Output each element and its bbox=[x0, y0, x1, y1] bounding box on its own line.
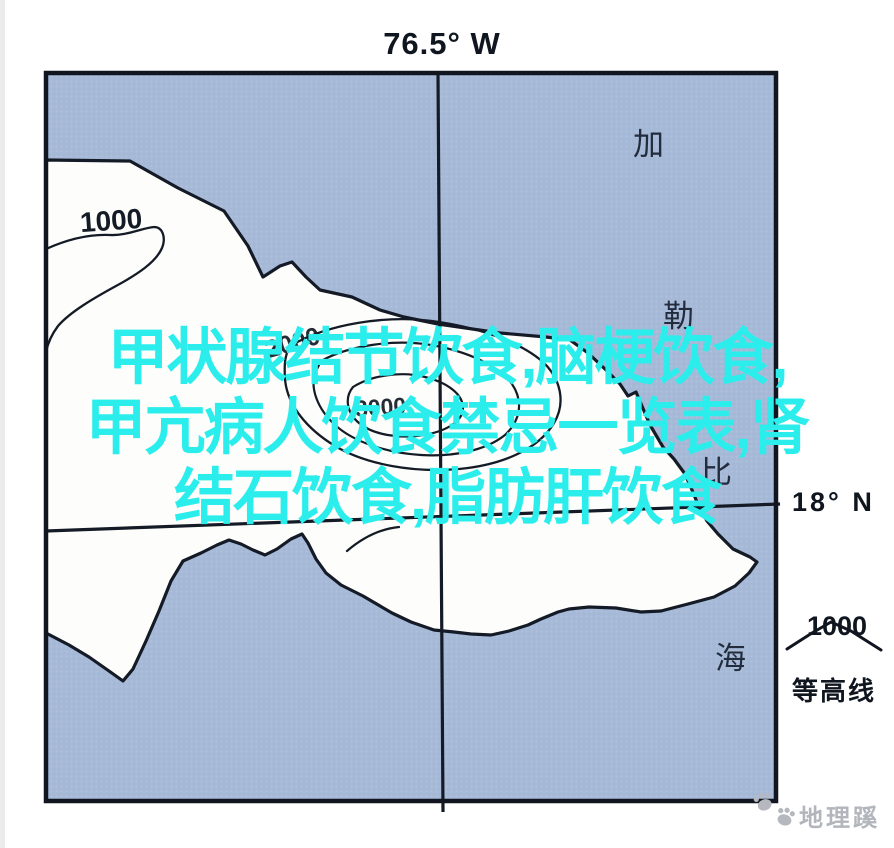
overlay-watermark-line-2: 甲亢病人饮食禁忌一览表,肾 bbox=[0, 392, 894, 462]
legend-contour-name: 等高线 bbox=[792, 671, 876, 708]
brand-watermark-text: 地理蹊 bbox=[799, 798, 880, 833]
legend-contour-value: 1000 bbox=[807, 611, 867, 642]
overlay-watermark-line-3: 结石饮食,脂肪肝饮食 bbox=[0, 462, 894, 532]
overlay-watermark-line-1: 甲状腺结节饮食,脑梗饮食, bbox=[0, 322, 894, 392]
sea-name-char-4: 海 bbox=[715, 633, 746, 678]
contour-label-1000: 1000 bbox=[79, 203, 143, 239]
overlay-watermark: 甲状腺结节饮食,脑梗饮食, 甲亢病人饮食禁忌一览表,肾 结石饮食,脂肪肝饮食 bbox=[0, 322, 894, 532]
longitude-label: 76.5° W bbox=[342, 26, 542, 62]
island-contour-map-figure: 76.5° W 18° N 1000 2000 3000 加 勒 比 海 100… bbox=[0, 0, 894, 848]
sea-name-char-1: 加 bbox=[633, 119, 664, 164]
